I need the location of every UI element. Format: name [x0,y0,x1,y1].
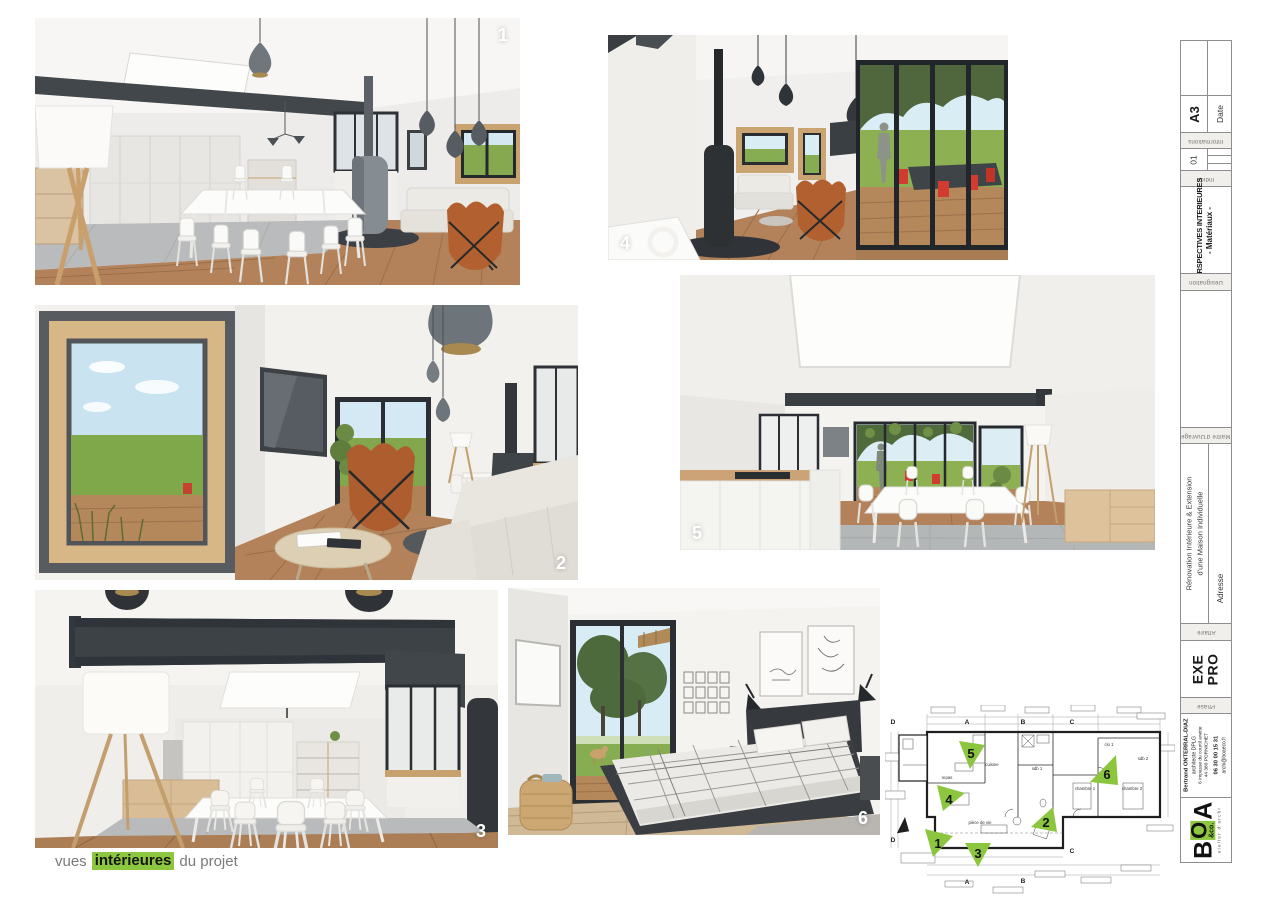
date-label: Date [1215,105,1225,123]
phase-label: Phase [1197,703,1215,709]
picture-window [39,311,235,573]
view-marker-number: 2 [1042,815,1049,830]
svg-text:C: C [1070,719,1075,726]
designation-label: Désignation [1189,279,1223,285]
caption-highlight: intérieures [92,852,175,870]
render-number: 4 [620,234,630,252]
room-label: sdb 2 [1138,756,1149,761]
render-number: 3 [476,822,486,840]
svg-text:B: B [1021,878,1026,885]
svg-text:B: B [1021,719,1026,726]
tv [823,427,849,457]
render-5-image [680,275,1155,550]
north-arrow [897,817,909,833]
view-marker-number: 4 [945,792,953,807]
wall-board [516,640,560,706]
boa-logo: B O &co. A atelier d'archi [1191,801,1222,858]
render-6-bedroom: 6 [508,588,880,835]
render-number: 1 [498,26,508,44]
informations-label-cell: Informations [1180,132,1232,149]
address-label: Adresse [1217,574,1226,603]
horizontal-window [455,124,520,184]
titleblock-empty-cell [1180,40,1208,96]
owner-label-cell: Maître d'Ouvrage [1180,427,1232,444]
view-marker-number: 3 [974,846,981,861]
skylight [790,275,1020,367]
basket [520,774,572,830]
render-6-image [508,588,880,835]
room-label: sdb 1 [1032,766,1043,771]
logo-tagline: atelier d'archi [1216,801,1221,858]
affaire-label-cell: Affaire [1180,623,1232,641]
architect-email: archi@boaeco.fr [1221,719,1228,792]
butterfly-chair [796,180,846,242]
informations-label: Informations [1188,138,1223,144]
agency-logo-cell: B O &co. A atelier d'archi [1180,797,1232,863]
render-3-image [35,590,498,848]
phase-value-line2: PRO [1206,653,1221,685]
caption-suffix: du projet [179,853,237,870]
svg-text:C: C [1070,848,1075,855]
floor-plan: cuisine repas pièce de vie sdb 1 clo 1 c… [885,705,1175,895]
view-marker-number: 5 [967,746,974,761]
designation-subtitle: - Matériaux - [1206,177,1217,282]
room-label: repas [942,775,953,780]
glazed-partition [385,686,461,807]
sideboard [1065,490,1155,550]
designation-label-cell: Désignation [1180,273,1232,291]
render-number: 2 [556,554,566,572]
architect-name: Bertrand ONTERRAL-DIAZ [1184,719,1192,792]
render-1-living-dining: 1 [35,18,520,285]
render-3-dining-room: 3 [35,590,498,848]
phase-cell: EXE PRO [1180,640,1232,698]
logo-letter-o: O [1191,821,1209,838]
indice-value: 01 [1189,155,1199,164]
room-label: pièce de vie [969,820,993,825]
nightstand [860,756,880,800]
skylight [220,672,360,708]
indice-value-cell: 01 [1180,148,1208,171]
owner-label: Maître d'Ouvrage [1181,433,1230,439]
building-outline [899,732,1160,848]
titleblock-empty-cell [1207,40,1232,96]
presentation-board: 1 [0,0,1280,905]
view-marker-number: 1 [934,836,941,851]
logo-letter-b: B [1194,841,1215,859]
caption-prefix: vues [55,853,87,870]
red-chair [932,474,940,484]
project-cell: Rénovation Intérieure & Extension d'une … [1180,443,1232,624]
render-4-image [608,35,1008,260]
architect-address-line2: 44 380 PORNICHET [1205,719,1211,792]
empty-cell [1180,290,1232,428]
glazed-partition [758,415,820,479]
kitchen [680,470,840,550]
render-2-image [35,305,578,580]
svg-text:D: D [891,719,896,726]
render-number: 5 [692,524,702,542]
phase-label-cell: Phase [1180,697,1232,714]
wood-window [736,127,794,173]
project-title-line2: d'une Maison Individuelle [1195,477,1206,591]
tv [830,120,860,156]
sheet-format: A3 [1187,106,1202,123]
date-cell: Date [1207,95,1232,133]
render-1-image [35,18,520,285]
render-5-kitchen-dining: 5 [680,275,1155,550]
logo-and-co: &co. [1208,822,1215,837]
svg-text:A: A [965,879,970,886]
logo-letter-a: A [1194,801,1215,819]
project-title-line1: Rénovation Intérieure & Extension [1184,477,1195,591]
svg-text:D: D [891,837,896,844]
svg-text:A: A [965,719,970,726]
room-label: cuisine [985,762,999,767]
format-cell: A3 [1180,95,1208,133]
designation-cell: PERSPECTIVES INTERIEURES - Matériaux - [1180,186,1232,274]
tv [260,367,327,457]
render-2-lounge-window: 2 [35,305,578,580]
indice-extra-cells [1207,148,1232,171]
affaire-label: Affaire [1197,629,1216,635]
render-number: 6 [858,809,868,827]
room-label: chambre 1 [1075,786,1096,791]
steel-beam [785,393,1040,406]
board-caption: vues intérieures du projet [55,852,238,870]
designation-title: PERSPECTIVES INTERIEURES [1196,177,1206,282]
view-marker-number: 6 [1103,767,1110,782]
second-window [798,128,826,180]
glazed-partition [533,367,578,471]
sliding-glass-doors [856,60,1008,250]
phase-value-line1: EXE [1191,653,1206,685]
butterfly-chair [347,443,415,531]
architect-contact-cell: Bertrand ONTERRAL-DIAZ architecte DPLG 6… [1180,713,1232,798]
title-block: A3 Date Informations 01 Indice PERSPECTI… [1180,40,1232,863]
render-4-living-terrace: 4 [608,35,1008,260]
room-label: chambre 2 [1122,786,1143,791]
room-label: clo 1 [1104,742,1114,747]
